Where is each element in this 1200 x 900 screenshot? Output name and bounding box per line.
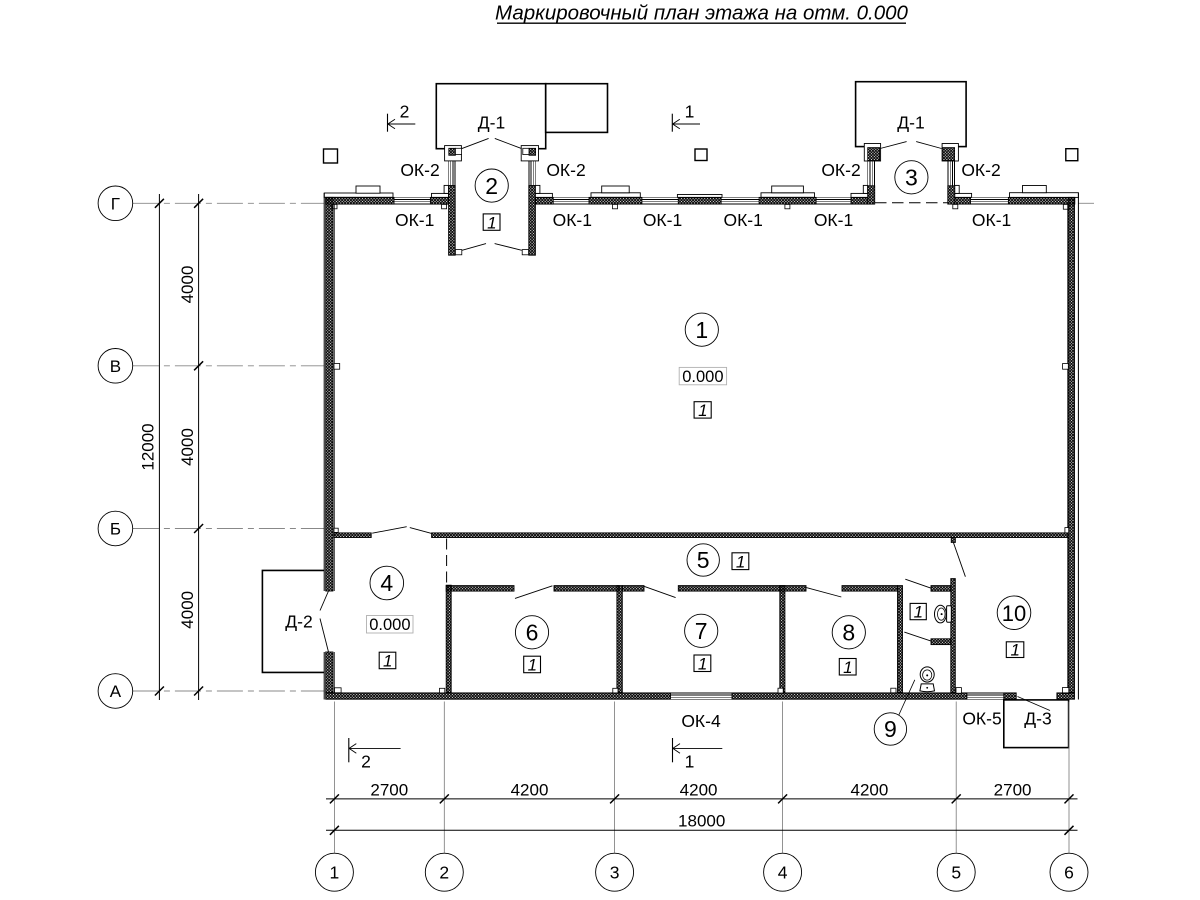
svg-text:1: 1 xyxy=(1010,641,1019,660)
svg-text:А: А xyxy=(110,682,122,701)
svg-text:2: 2 xyxy=(439,862,449,882)
svg-text:ОК-2: ОК-2 xyxy=(961,160,1000,180)
svg-text:1: 1 xyxy=(685,751,695,771)
svg-text:ОК-4: ОК-4 xyxy=(681,711,721,731)
svg-text:Д-1: Д-1 xyxy=(478,113,505,133)
svg-text:7: 7 xyxy=(695,618,708,644)
svg-text:1: 1 xyxy=(843,658,852,677)
svg-text:5: 5 xyxy=(697,547,710,573)
svg-text:4: 4 xyxy=(380,570,393,596)
svg-text:ОК-1: ОК-1 xyxy=(724,210,763,230)
svg-text:4000: 4000 xyxy=(178,591,197,629)
svg-text:1: 1 xyxy=(330,862,340,882)
svg-text:3: 3 xyxy=(905,165,918,191)
svg-text:18000: 18000 xyxy=(678,812,725,831)
svg-text:6: 6 xyxy=(526,620,539,646)
svg-text:10: 10 xyxy=(1002,601,1026,626)
svg-text:2: 2 xyxy=(361,751,371,771)
svg-text:ОК-1: ОК-1 xyxy=(814,210,853,230)
svg-text:2: 2 xyxy=(485,173,498,199)
svg-text:Г: Г xyxy=(111,194,120,213)
svg-text:12000: 12000 xyxy=(139,423,158,470)
svg-text:1: 1 xyxy=(698,401,707,420)
svg-text:6: 6 xyxy=(1064,862,1074,882)
svg-text:1: 1 xyxy=(698,654,707,673)
svg-text:В: В xyxy=(110,357,121,376)
svg-text:1: 1 xyxy=(914,603,923,622)
svg-text:ОК-1: ОК-1 xyxy=(395,210,434,230)
svg-text:8: 8 xyxy=(842,620,855,646)
svg-text:3: 3 xyxy=(610,862,620,882)
svg-text:Б: Б xyxy=(110,520,121,539)
svg-text:4200: 4200 xyxy=(680,780,718,799)
svg-text:ОК-2: ОК-2 xyxy=(400,160,439,180)
svg-text:4000: 4000 xyxy=(178,428,197,466)
svg-text:1: 1 xyxy=(383,652,392,671)
svg-text:1: 1 xyxy=(685,102,695,122)
svg-text:2: 2 xyxy=(400,102,410,122)
svg-text:4000: 4000 xyxy=(178,266,197,304)
svg-text:4200: 4200 xyxy=(850,780,888,799)
svg-text:ОК-1: ОК-1 xyxy=(553,210,592,230)
svg-text:4: 4 xyxy=(778,862,788,882)
svg-text:ОК-2: ОК-2 xyxy=(546,160,585,180)
svg-text:Д-2: Д-2 xyxy=(285,611,312,631)
svg-text:0.000: 0.000 xyxy=(369,616,410,634)
svg-text:2700: 2700 xyxy=(370,780,408,799)
svg-text:1: 1 xyxy=(487,213,496,232)
svg-text:2700: 2700 xyxy=(994,780,1032,799)
svg-text:Маркировочный план этажа на от: Маркировочный план этажа на отм. 0.000 xyxy=(495,1,909,24)
svg-text:1: 1 xyxy=(695,317,708,343)
svg-text:ОК-1: ОК-1 xyxy=(972,210,1011,230)
svg-text:5: 5 xyxy=(951,862,961,882)
svg-text:ОК-1: ОК-1 xyxy=(643,210,682,230)
svg-text:ОК-5: ОК-5 xyxy=(962,708,1001,728)
svg-text:0.000: 0.000 xyxy=(682,368,723,386)
svg-text:9: 9 xyxy=(884,716,897,742)
svg-text:4200: 4200 xyxy=(511,780,549,799)
svg-text:Д-1: Д-1 xyxy=(897,113,924,133)
svg-text:1: 1 xyxy=(736,552,745,571)
svg-text:ОК-2: ОК-2 xyxy=(821,160,860,180)
svg-text:1: 1 xyxy=(528,656,537,675)
svg-text:Д-3: Д-3 xyxy=(1024,708,1051,728)
